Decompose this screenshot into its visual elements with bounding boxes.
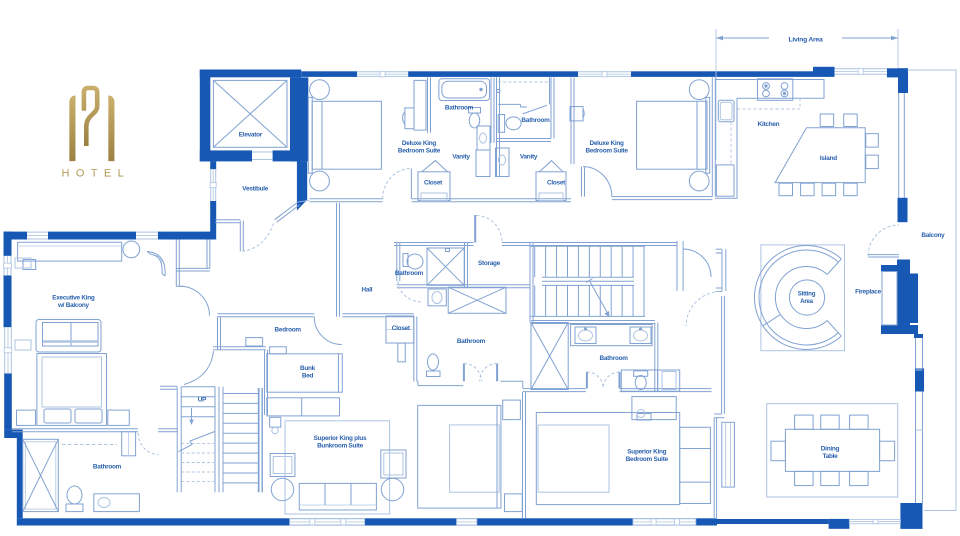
svg-text:UP: UP — [198, 397, 207, 404]
svg-text:Superior King: Superior King — [627, 449, 666, 456]
svg-text:Area: Area — [800, 298, 814, 305]
svg-text:Living Area: Living Area — [788, 37, 822, 44]
svg-text:Superior King plus: Superior King plus — [314, 435, 367, 442]
svg-text:Bathroom: Bathroom — [521, 117, 550, 124]
svg-text:Table: Table — [823, 453, 839, 460]
svg-text:Hall: Hall — [362, 287, 373, 294]
svg-text:Bedroom Suite: Bedroom Suite — [626, 456, 669, 463]
svg-text:Fireplace: Fireplace — [855, 289, 882, 296]
svg-text:Vestibule: Vestibule — [242, 186, 269, 193]
svg-text:Bathroom: Bathroom — [457, 338, 486, 345]
svg-text:HOTEL: HOTEL — [62, 168, 131, 180]
svg-text:Deluxe King: Deluxe King — [590, 140, 625, 147]
svg-text:Vanity: Vanity — [452, 154, 470, 161]
svg-text:Sitting: Sitting — [798, 291, 816, 298]
svg-text:Closet: Closet — [392, 325, 411, 332]
svg-text:Elevator: Elevator — [239, 132, 263, 139]
svg-text:Closet: Closet — [424, 180, 443, 187]
svg-text:Storage: Storage — [478, 260, 501, 267]
svg-text:Dining: Dining — [821, 446, 840, 453]
svg-text:Bathroom: Bathroom — [395, 270, 424, 277]
svg-text:Bedroom Suite: Bedroom Suite — [585, 148, 628, 155]
svg-text:Executive King: Executive King — [52, 295, 95, 302]
svg-text:Bunk: Bunk — [300, 365, 316, 372]
svg-text:w/ Balcony: w/ Balcony — [57, 302, 90, 309]
svg-text:Bathroom: Bathroom — [445, 105, 474, 112]
svg-text:Deluxe King: Deluxe King — [402, 140, 437, 147]
svg-text:Closet: Closet — [547, 180, 566, 187]
svg-text:Bed: Bed — [302, 373, 314, 380]
svg-text:Vanity: Vanity — [520, 154, 538, 161]
svg-text:Bathroom: Bathroom — [93, 464, 122, 471]
svg-text:Bunkroom Suite: Bunkroom Suite — [317, 443, 364, 450]
svg-text:Island: Island — [820, 155, 837, 162]
svg-text:Bedroom: Bedroom — [275, 327, 302, 334]
svg-text:Kitchen: Kitchen — [758, 121, 780, 128]
svg-text:Bathroom: Bathroom — [600, 355, 629, 362]
svg-text:Bedroom Suite: Bedroom Suite — [398, 148, 441, 155]
svg-text:Balcony: Balcony — [921, 232, 945, 239]
